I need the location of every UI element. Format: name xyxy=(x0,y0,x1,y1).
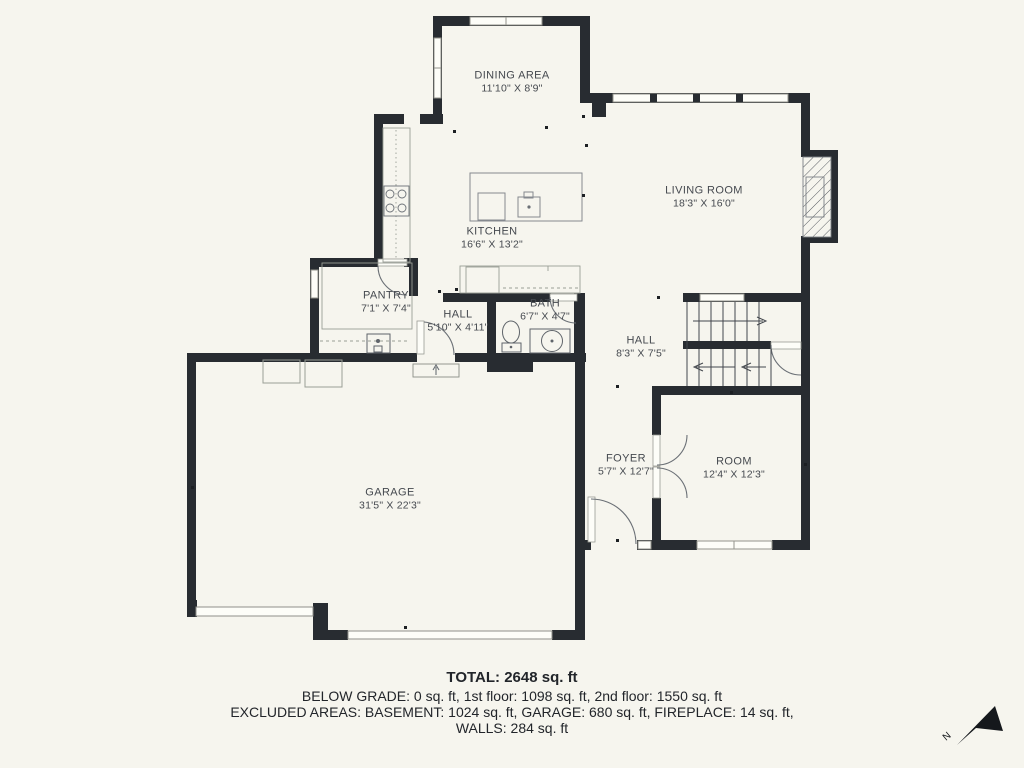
floors-area-line: BELOW GRADE: 0 sq. ft, 1st floor: 1098 s… xyxy=(0,688,1024,704)
utility-fixture xyxy=(367,334,390,353)
kitchen-counter-west xyxy=(383,128,410,262)
bath-fixtures xyxy=(502,321,570,353)
garage-doors xyxy=(196,607,552,639)
room-name: ROOM xyxy=(703,456,765,469)
room-label-pantry: PANTRY 7'1" X 7'4" xyxy=(361,290,411,315)
room-label-living: LIVING ROOM 18'3" X 16'0" xyxy=(665,185,743,210)
room-dims: 8'3" X 7'5" xyxy=(616,347,666,360)
room-dims: 11'10" X 8'9" xyxy=(474,82,549,95)
room-name: DINING AREA xyxy=(474,70,549,83)
room-dims: 7'1" X 7'4" xyxy=(361,302,411,315)
room-dims: 16'6" X 13'2" xyxy=(461,238,523,251)
room-dims: 5'7" X 12'7" xyxy=(598,465,654,478)
room-name: PANTRY xyxy=(361,290,411,303)
kitchen-island xyxy=(470,173,582,221)
room-label-foyer: FOYER 5'7" X 12'7" xyxy=(598,453,654,478)
room-label-room: ROOM 12'4" X 12'3" xyxy=(703,456,765,481)
area-summary: TOTAL: 2648 sq. ft BELOW GRADE: 0 sq. ft… xyxy=(0,670,1024,736)
kitchen-counter-south xyxy=(460,266,580,293)
room-label-garage: GARAGE 31'5" X 22'3" xyxy=(359,487,421,512)
room-dims: 31'5" X 22'3" xyxy=(359,499,421,512)
floor-plan-svg: N xyxy=(0,0,1024,768)
room-dims: 6'7" X 4'7" xyxy=(520,310,570,323)
room-name: FOYER xyxy=(598,453,654,466)
floor-plan-page: N DINING AREA 11'10" X 8'9" LIVING ROOM … xyxy=(0,0,1024,768)
room-label-hall-upper: HALL 8'3" X 7'5" xyxy=(616,335,666,360)
garage-storage xyxy=(263,360,342,387)
room-dims: 5'10" X 4'11" xyxy=(427,321,488,334)
room-label-dining: DINING AREA 11'10" X 8'9" xyxy=(474,70,549,95)
walls-area-line: WALLS: 284 sq. ft xyxy=(0,720,1024,736)
room-name: LIVING ROOM xyxy=(665,185,743,198)
room-name: GARAGE xyxy=(359,487,421,500)
excluded-area-line: EXCLUDED AREAS: BASEMENT: 1024 sq. ft, G… xyxy=(0,704,1024,720)
room-dims: 18'3" X 16'0" xyxy=(665,197,743,210)
room-label-hall-small: HALL 5'10" X 4'11" xyxy=(427,309,488,334)
total-area: TOTAL: 2648 sq. ft xyxy=(0,670,1024,686)
room-label-kitchen: KITCHEN 16'6" X 13'2" xyxy=(461,226,523,251)
room-name: BATH xyxy=(520,298,570,311)
room-name: HALL xyxy=(427,309,488,322)
room-label-bath: BATH 6'7" X 4'7" xyxy=(520,298,570,323)
room-name: KITCHEN xyxy=(461,226,523,239)
fireplace xyxy=(803,157,831,237)
room-dims: 12'4" X 12'3" xyxy=(703,468,765,481)
room-name: HALL xyxy=(616,335,666,348)
